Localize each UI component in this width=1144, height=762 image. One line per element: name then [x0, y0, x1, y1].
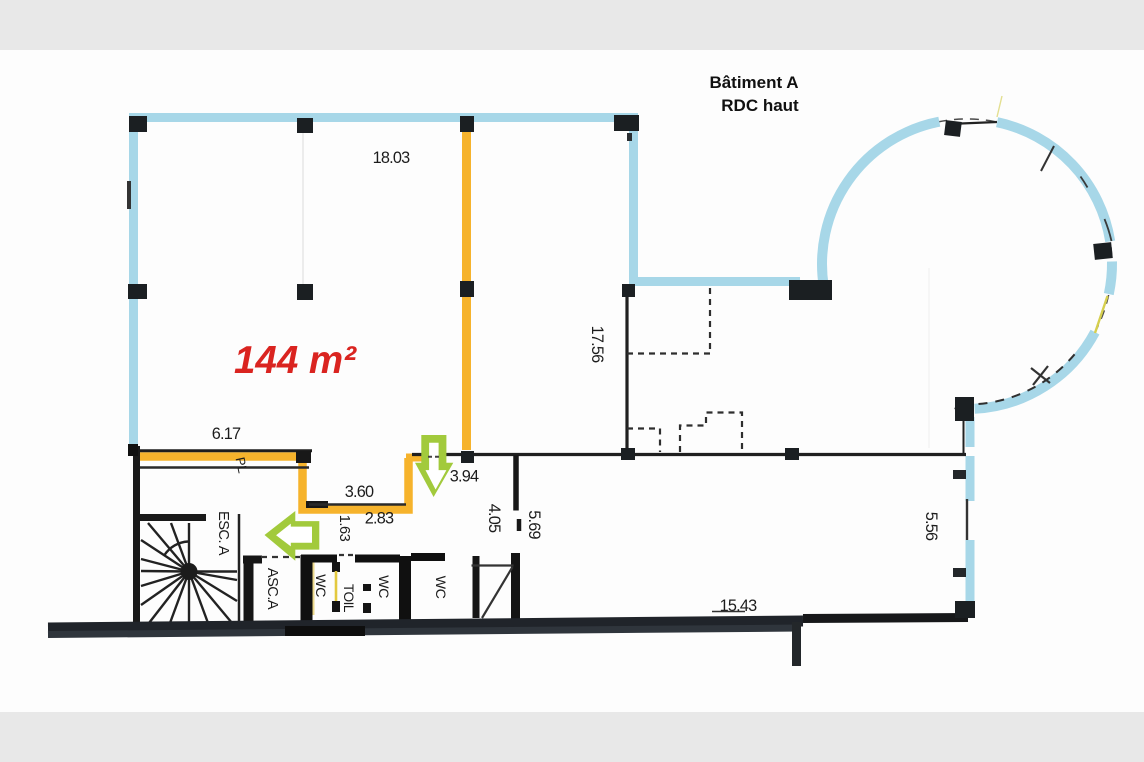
svg-text:4.05: 4.05	[485, 504, 503, 533]
svg-text:WC: WC	[432, 576, 448, 599]
svg-text:PL: PL	[233, 456, 251, 475]
svg-text:3.60: 3.60	[345, 483, 374, 501]
svg-text:ASC.A: ASC.A	[264, 568, 280, 610]
svg-text:3.94: 3.94	[450, 468, 479, 486]
svg-text:2.83: 2.83	[365, 510, 394, 528]
svg-text:Bâtiment A: Bâtiment A	[709, 73, 798, 92]
svg-text:5.69: 5.69	[525, 510, 543, 539]
svg-text:TOIL: TOIL	[341, 584, 356, 613]
svg-text:WC: WC	[312, 574, 328, 597]
svg-text:15.43: 15.43	[720, 597, 757, 615]
svg-text:RDC haut: RDC haut	[721, 96, 799, 115]
svg-text:17.56: 17.56	[588, 326, 606, 363]
svg-text:1.63: 1.63	[336, 515, 352, 542]
svg-text:ESC. A: ESC. A	[215, 511, 231, 556]
svg-text:144 m²: 144 m²	[234, 339, 357, 382]
svg-text:18.03: 18.03	[373, 149, 410, 167]
svg-text:5.56: 5.56	[922, 512, 940, 541]
svg-text:6.17: 6.17	[212, 425, 241, 443]
svg-text:WC: WC	[375, 575, 391, 598]
